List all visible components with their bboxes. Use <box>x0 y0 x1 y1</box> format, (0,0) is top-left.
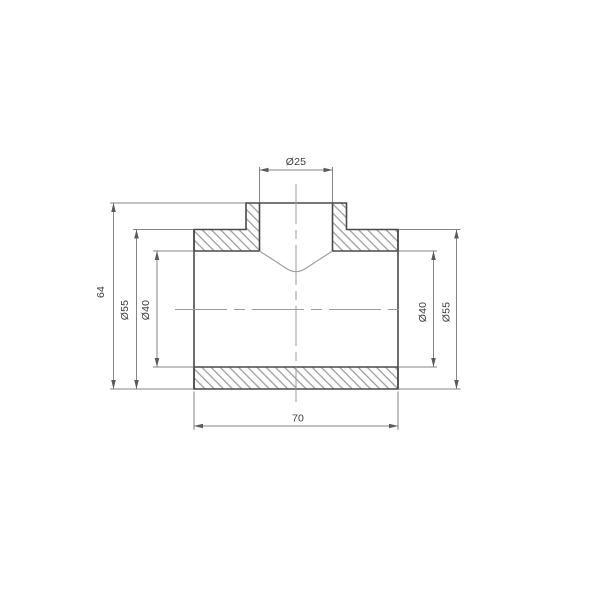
dim-label-overall-length: 70 <box>292 413 304 425</box>
dim-label-left-inner-diameter: Ø40 <box>140 300 152 320</box>
dim-label-overall-height: 64 <box>95 286 107 298</box>
dim-right-outer-diameter: Ø55 <box>399 230 461 390</box>
dim-label-left-outer-diameter: Ø55 <box>119 300 131 320</box>
dim-label-right-outer-diameter: Ø55 <box>441 302 453 322</box>
dim-label-right-inner-diameter: Ø40 <box>417 302 429 322</box>
technical-drawing: Ø25 64 Ø55 Ø40 Ø40 <box>0 0 600 600</box>
part-right-wall-section <box>333 203 399 251</box>
dim-label-top-diameter: Ø25 <box>286 156 306 168</box>
drawing-canvas: Ø25 64 Ø55 Ø40 Ø40 <box>0 0 600 600</box>
dim-right-inner-diameter: Ø40 <box>399 251 438 367</box>
part-left-wall-section <box>194 203 260 251</box>
